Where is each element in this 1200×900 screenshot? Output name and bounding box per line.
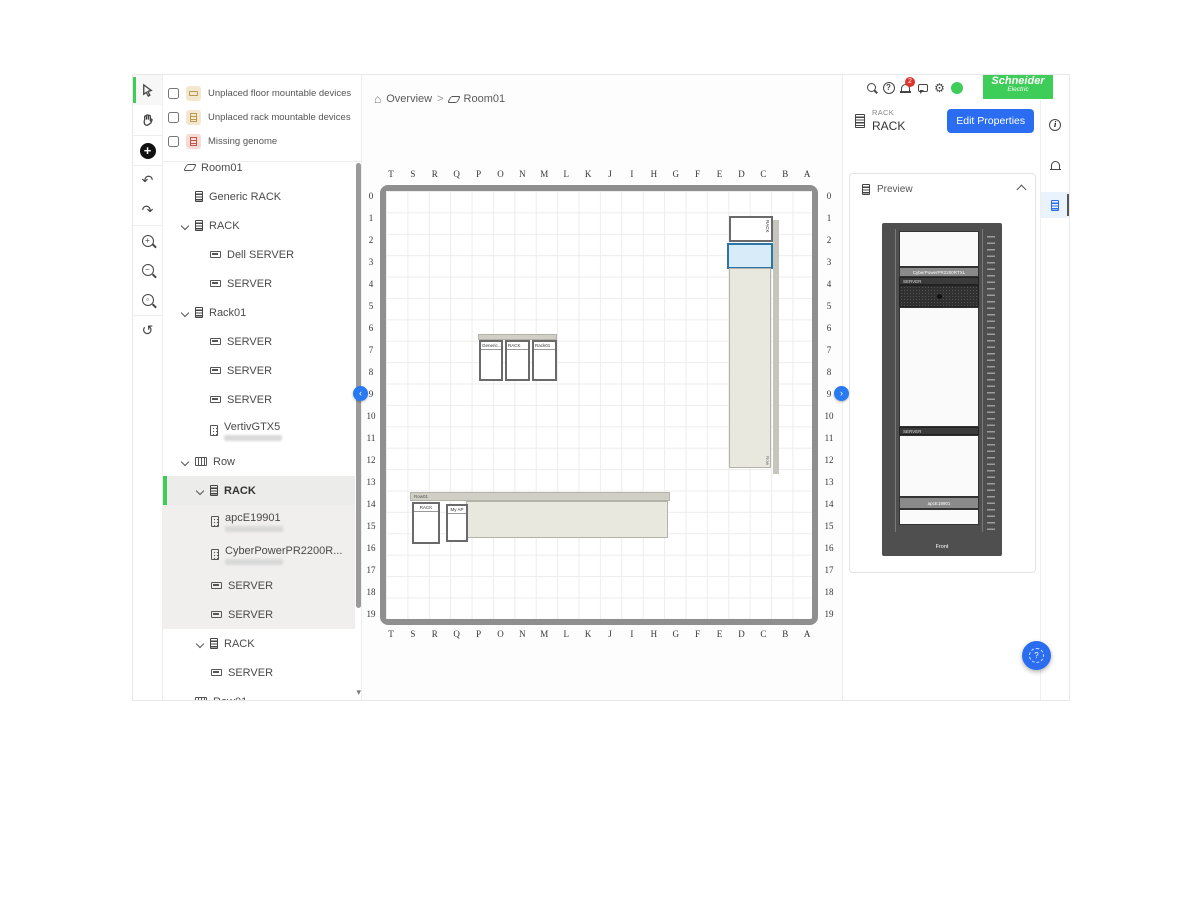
tree-item-row[interactable]: Row xyxy=(163,447,355,476)
preview-device-apc[interactable]: apcE19901 xyxy=(899,497,979,509)
ups-icon xyxy=(211,516,219,527)
server-icon xyxy=(210,280,221,287)
edit-properties-button[interactable]: Edit Properties xyxy=(947,109,1034,133)
info-icon: i xyxy=(1049,119,1061,131)
assistant-fab-button[interactable]: ? xyxy=(1022,641,1051,670)
filter-label: Unplaced floor mountable devices xyxy=(208,88,351,99)
filter-missing-genome: Missing genome xyxy=(168,129,357,153)
floorplan-canvas[interactable]: ⌂ Overview > Room01 TSRQPONMLKJIHGFEDCBA… xyxy=(362,75,842,700)
axis-label: 2 xyxy=(364,229,378,251)
server-icon xyxy=(211,582,222,589)
axis-label: H xyxy=(643,629,665,641)
axis-label: Q xyxy=(446,629,468,641)
axis-label: A xyxy=(796,629,818,641)
tree-item-server[interactable]: SERVER xyxy=(163,571,355,600)
gear-icon: ⚙ xyxy=(934,82,945,94)
axis-label: 7 xyxy=(364,339,378,361)
axis-label: Q xyxy=(446,169,468,181)
tree-item-dell-server[interactable]: Dell SERVER xyxy=(163,240,355,269)
axis-label: 6 xyxy=(822,317,836,339)
axis-label: J xyxy=(599,629,621,641)
axis-label: 13 xyxy=(364,471,378,493)
help-button[interactable]: ? xyxy=(880,75,897,100)
rack-icon xyxy=(862,184,870,195)
preview-device-server-mesh[interactable] xyxy=(899,285,979,307)
column-labels-bottom: TSRQPONMLKJIHGFEDCBA xyxy=(380,629,818,641)
axis-label: 1 xyxy=(822,207,836,229)
axis-label: H xyxy=(643,169,665,181)
axis-label: 8 xyxy=(822,361,836,383)
axis-label: 15 xyxy=(822,515,836,537)
axis-label: 18 xyxy=(822,581,836,603)
info-panel-button[interactable]: i xyxy=(1041,112,1069,138)
axis-label: I xyxy=(621,629,643,641)
rack-icon xyxy=(210,485,218,496)
axis-label: S xyxy=(402,629,424,641)
floor-rack-top[interactable]: RACK xyxy=(729,216,773,242)
cursor-icon xyxy=(140,83,155,98)
rack-icon xyxy=(210,638,218,649)
tree-item-server[interactable]: SERVER xyxy=(163,385,355,414)
preview-card: Preview CyberPowerPR2200RTXL SERVER xyxy=(849,173,1036,573)
axis-label: I xyxy=(621,169,643,181)
app-window: + ↶ ↷ + − ▫ ↺ Unplaced floor mountable d… xyxy=(133,75,1069,700)
rack-preview[interactable]: CyberPowerPR2200RTXL SERVER SERVER apcE1… xyxy=(882,223,1002,556)
right-area: ? 2 ⚙ Schneider Electric RACK RACK xyxy=(842,75,1069,700)
server-icon xyxy=(210,251,221,258)
schneider-logo[interactable]: Schneider Electric xyxy=(983,75,1053,99)
tree-item-rack-selected[interactable]: RACK xyxy=(163,476,355,505)
tree-item-generic-rack[interactable]: Generic RACK xyxy=(163,182,355,211)
tree-item-row01[interactable]: Row01 xyxy=(163,687,355,700)
rack-icon xyxy=(855,114,865,128)
server-icon xyxy=(210,338,221,345)
axis-label: L xyxy=(555,629,577,641)
zoom-in-icon: + xyxy=(142,235,154,247)
axis-label: B xyxy=(774,629,796,641)
server-icon xyxy=(211,611,222,618)
filter-unplaced-floor: Unplaced floor mountable devices xyxy=(168,81,357,105)
bell-icon xyxy=(1051,161,1060,169)
zoom-fit-icon: ▫ xyxy=(142,294,154,306)
axis-label: 4 xyxy=(364,273,378,295)
rack-icon xyxy=(1051,200,1059,211)
axis-label: 3 xyxy=(822,251,836,273)
axis-label: 12 xyxy=(822,449,836,471)
column-labels-top: TSRQPONMLKJIHGFEDCBA xyxy=(380,169,818,181)
empty-panel xyxy=(899,307,979,427)
floor-device-chip-icon xyxy=(186,86,201,101)
filter-label: Missing genome xyxy=(208,136,277,147)
axis-label: K xyxy=(577,629,599,641)
rack-icon xyxy=(195,307,203,318)
breadcrumb-room01[interactable]: Room01 xyxy=(464,93,506,105)
server-icon xyxy=(210,396,221,403)
tree-item-rack01[interactable]: Rack01 xyxy=(163,298,355,327)
chevron-down-icon[interactable] xyxy=(181,698,189,701)
floor-rack-bottom2[interactable]: My AP xyxy=(446,504,468,542)
axis-label: 1 xyxy=(364,207,378,229)
axis-label: E xyxy=(709,169,731,181)
missing-genome-chip-icon xyxy=(186,134,201,149)
chevron-down-icon[interactable] xyxy=(181,458,189,466)
account-button[interactable] xyxy=(948,75,965,100)
axis-label: 10 xyxy=(822,405,836,427)
tree-item-server[interactable]: SERVER xyxy=(163,600,355,629)
scroll-down-arrow[interactable]: ▾ xyxy=(356,687,361,698)
axis-label: D xyxy=(731,629,753,641)
axis-label: 6 xyxy=(364,317,378,339)
axis-label: 7 xyxy=(822,339,836,361)
help-icon: ? xyxy=(883,82,895,94)
rack-device-chip-icon xyxy=(186,110,201,125)
axis-label: D xyxy=(731,169,753,181)
axis-label: T xyxy=(380,629,402,641)
tree-item-server[interactable]: SERVER xyxy=(163,269,355,298)
axis-label: M xyxy=(533,629,555,641)
axis-label: B xyxy=(774,169,796,181)
server-icon xyxy=(211,669,222,676)
redacted-subtitle xyxy=(225,526,283,532)
floor-rack-generic[interactable]: Generic... xyxy=(479,340,503,381)
preview-device-server-label[interactable]: SERVER xyxy=(899,277,979,285)
notifications-button[interactable]: 2 xyxy=(897,75,914,100)
empty-panel xyxy=(899,509,979,525)
zoom-fit-button[interactable]: ▫ xyxy=(133,285,162,315)
select-tool-button[interactable] xyxy=(133,75,162,105)
ups-icon xyxy=(211,549,219,560)
tree-item-rack[interactable]: RACK xyxy=(163,211,355,240)
search-button[interactable] xyxy=(863,75,880,100)
undo-icon: ↶ xyxy=(142,172,154,189)
tree-item-vertivgtx5[interactable]: VertivGTX5 xyxy=(163,414,355,447)
floor-rack-bottom1[interactable]: RACK xyxy=(412,502,440,544)
bottom-row-body[interactable] xyxy=(466,501,668,538)
row-labels-left: 012345678910111213141516171819 xyxy=(364,185,378,625)
tree-item-cyberpower[interactable]: CyberPowerPR2200R... xyxy=(163,538,355,571)
axis-label: S xyxy=(402,169,424,181)
chevron-down-icon[interactable] xyxy=(196,487,204,495)
floor-rack-selected[interactable] xyxy=(727,243,773,269)
room-icon xyxy=(183,164,197,171)
axis-label: 11 xyxy=(822,427,836,449)
ups-icon xyxy=(210,425,218,436)
axis-label: 13 xyxy=(822,471,836,493)
axis-label: P xyxy=(468,629,490,641)
axis-label: 18 xyxy=(364,581,378,603)
chevron-left-icon: ‹ xyxy=(359,388,362,398)
tree-item-apce19901[interactable]: apcE19901 xyxy=(163,505,355,538)
tree-item-room01[interactable]: Room01 xyxy=(163,153,355,182)
axis-label: 16 xyxy=(822,537,836,559)
axis-label: C xyxy=(752,629,774,641)
axis-label: A xyxy=(796,169,818,181)
filter-label: Unplaced rack mountable devices xyxy=(208,112,351,123)
history-button[interactable]: ↺ xyxy=(133,315,162,345)
axis-label: 5 xyxy=(364,295,378,317)
axis-label: 4 xyxy=(822,273,836,295)
breadcrumb-separator: > xyxy=(437,93,443,105)
detail-header: RACK RACK Edit Properties xyxy=(843,100,1040,143)
axis-label: 0 xyxy=(822,185,836,207)
axis-label: R xyxy=(424,169,446,181)
zoom-out-icon: − xyxy=(142,264,154,276)
redacted-subtitle xyxy=(224,435,282,441)
tree-item-server[interactable]: SERVER xyxy=(163,327,355,356)
rack-unit-scale xyxy=(987,231,995,530)
axis-label: 10 xyxy=(364,405,378,427)
axis-label: P xyxy=(468,169,490,181)
floor-rack-mid[interactable]: RACK xyxy=(505,340,530,381)
axis-label: M xyxy=(533,169,555,181)
tool-rail: + ↶ ↷ + − ▫ ↺ xyxy=(133,75,163,700)
selected-branch: RACK apcE19901 CyberPowerPR2200R... xyxy=(163,476,355,629)
axis-label: T xyxy=(380,169,402,181)
axis-label: 16 xyxy=(364,537,378,559)
axis-label: E xyxy=(709,629,731,641)
collapse-preview-icon[interactable] xyxy=(1017,185,1027,195)
hand-icon xyxy=(140,113,155,128)
history-icon: ↺ xyxy=(142,322,154,339)
room-outline[interactable]: RACK Row Generic... RACK Rack01 Row01 xyxy=(380,185,818,625)
chevron-down-icon[interactable] xyxy=(181,222,189,230)
details-panel: RACK RACK Edit Properties Preview xyxy=(843,100,1040,700)
axis-label: 17 xyxy=(364,559,378,581)
preview-device-cyberpower[interactable]: CyberPowerPR2200RTXL xyxy=(899,267,979,277)
redo-icon: ↷ xyxy=(142,202,154,219)
row-icon xyxy=(195,457,207,466)
assistant-icon: ? xyxy=(1029,648,1044,663)
axis-label: F xyxy=(687,169,709,181)
axis-label: K xyxy=(577,169,599,181)
chevron-down-icon[interactable] xyxy=(196,640,204,648)
settings-button[interactable]: ⚙ xyxy=(931,75,948,100)
row-labels-right: 012345678910111213141516171819 xyxy=(822,185,836,625)
axis-label: 14 xyxy=(364,493,378,515)
tree-item-server[interactable]: SERVER xyxy=(163,658,355,687)
axis-label: J xyxy=(599,169,621,181)
bottom-row-bar[interactable]: Row01 xyxy=(410,492,670,501)
rack-front-label: Front xyxy=(882,544,1002,550)
tree-item-rack2[interactable]: RACK xyxy=(163,629,355,658)
zoom-out-button[interactable]: − xyxy=(133,255,162,285)
server-icon xyxy=(210,367,221,374)
selected-name: RACK xyxy=(872,119,905,133)
device-tree: Room01 Generic RACK RACK Dell SERVER SER xyxy=(163,153,355,700)
add-tool-button[interactable]: + xyxy=(133,135,162,165)
filter-section: Unplaced floor mountable devices Unplace… xyxy=(163,75,361,162)
feedback-button[interactable] xyxy=(914,75,931,100)
pan-tool-button[interactable] xyxy=(133,105,162,135)
plus-circle-icon: + xyxy=(140,143,156,159)
axis-label: O xyxy=(490,629,512,641)
filter-unplaced-rack: Unplaced rack mountable devices xyxy=(168,105,357,129)
axis-label: 2 xyxy=(822,229,836,251)
axis-label: O xyxy=(490,169,512,181)
preview-title: Preview xyxy=(877,184,913,195)
floor-rack01[interactable]: Rack01 xyxy=(532,340,557,381)
feedback-icon xyxy=(918,84,928,92)
filter-missing-genome-checkbox[interactable] xyxy=(168,136,179,147)
rack-icon xyxy=(195,191,203,202)
axis-label: 17 xyxy=(822,559,836,581)
axis-label: 11 xyxy=(364,427,378,449)
axis-label: G xyxy=(665,169,687,181)
redo-button[interactable]: ↷ xyxy=(133,195,162,225)
search-icon xyxy=(867,83,876,92)
axis-label: 15 xyxy=(364,515,378,537)
axis-label: 0 xyxy=(364,185,378,207)
undo-button[interactable]: ↶ xyxy=(133,165,162,195)
empty-panel xyxy=(899,435,979,497)
tree-item-server[interactable]: SERVER xyxy=(163,356,355,385)
axis-label: F xyxy=(687,629,709,641)
right-icon-strip: i xyxy=(1040,100,1069,700)
breadcrumb: ⌂ Overview > Room01 xyxy=(374,92,505,106)
axis-label: 3 xyxy=(364,251,378,273)
top-header: ? 2 ⚙ Schneider Electric xyxy=(843,75,1069,100)
axis-label: 5 xyxy=(822,295,836,317)
row-shadow xyxy=(773,220,779,474)
chevron-down-icon[interactable] xyxy=(181,309,189,317)
axis-label: L xyxy=(555,169,577,181)
floor-row-vertical[interactable]: Row xyxy=(729,268,771,468)
axis-label: 8 xyxy=(364,361,378,383)
axis-label: 12 xyxy=(364,449,378,471)
empty-panel xyxy=(899,231,979,267)
row-icon xyxy=(195,697,207,700)
rack-panel-button[interactable] xyxy=(1041,192,1069,218)
axis-label: G xyxy=(665,629,687,641)
axis-label: C xyxy=(752,169,774,181)
axis-label: 14 xyxy=(822,493,836,515)
axis-label: 19 xyxy=(822,603,836,625)
axis-label: 19 xyxy=(364,603,378,625)
alarms-panel-button[interactable] xyxy=(1041,152,1069,178)
selected-type-label: RACK xyxy=(872,108,905,117)
axis-label: N xyxy=(511,629,533,641)
room-icon xyxy=(447,96,461,103)
breadcrumb-overview[interactable]: Overview xyxy=(386,93,432,105)
collapse-left-panel-button[interactable]: ‹ xyxy=(353,386,368,401)
home-icon: ⌂ xyxy=(374,92,381,106)
axis-label: R xyxy=(424,629,446,641)
filter-unplaced-floor-checkbox[interactable] xyxy=(168,88,179,99)
axis-label: N xyxy=(511,169,533,181)
preview-device-server2[interactable]: SERVER xyxy=(899,427,979,435)
status-dot-icon xyxy=(951,82,963,94)
redacted-subtitle xyxy=(225,559,283,565)
sidebar: Unplaced floor mountable devices Unplace… xyxy=(163,75,362,700)
filter-unplaced-rack-checkbox[interactable] xyxy=(168,112,179,123)
rack-icon xyxy=(195,220,203,231)
zoom-in-button[interactable]: + xyxy=(133,225,162,255)
